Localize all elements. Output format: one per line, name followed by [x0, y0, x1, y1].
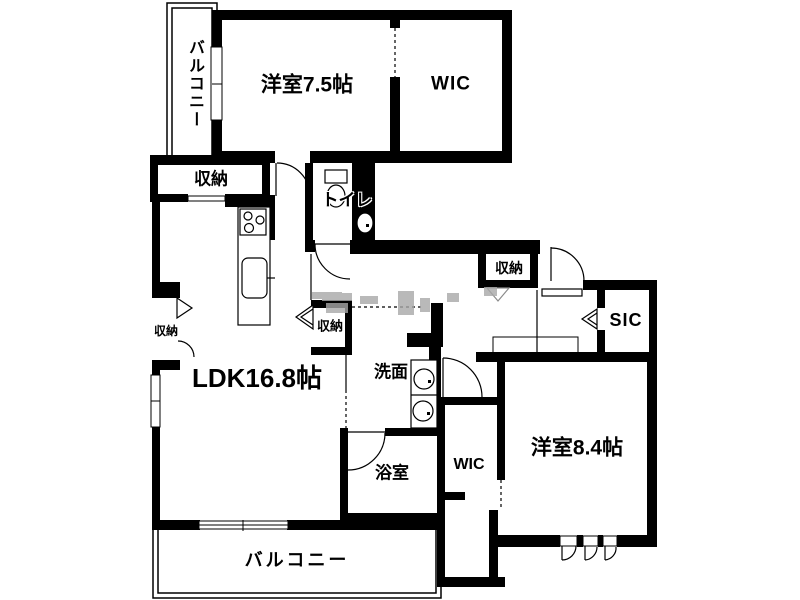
window-bedroom84-2 — [583, 536, 598, 546]
window-bedroom84-3 — [603, 536, 617, 546]
closet-door-left — [177, 298, 194, 357]
kitchen-counter-icon — [238, 207, 275, 325]
label-storage-left: 収納 — [154, 325, 178, 337]
windows-bedroom84-swings — [562, 546, 616, 560]
label-storage-hall: 収納 — [495, 261, 523, 275]
label-wic-bottom: WIC — [453, 457, 484, 473]
watermark — [312, 287, 497, 315]
label-sic: SIC — [609, 311, 642, 329]
label-bedroom-7-5: 洋室7.5帖 — [261, 75, 353, 96]
label-storage-top: 収納 — [194, 171, 228, 188]
closet-door-sic — [582, 308, 605, 330]
label-bedroom-8-4: 洋室8.4帖 — [531, 438, 623, 459]
label-balcony-top: バルコニー — [186, 39, 202, 129]
label-toilet: トイレ — [322, 192, 373, 209]
label-ldk: LDK16.8帖 — [192, 365, 322, 391]
label-storage-mid: 収納 — [317, 320, 343, 333]
door-toilet — [315, 244, 350, 279]
label-bathroom: 浴室 — [375, 465, 409, 482]
label-washroom: 洗面 — [374, 364, 408, 381]
closet-door-mid — [296, 305, 313, 329]
sliding-door-storage-top — [188, 196, 225, 201]
window-bedroom84-1 — [560, 536, 577, 546]
toilet-sink-icon — [357, 213, 373, 233]
floorplan: バルコニー 洋室7.5帖 WIC 収納 トイレ 収納 収納 収納 LDK16.8… — [0, 0, 800, 600]
door-bedroom75 — [276, 163, 310, 196]
entrance-step — [542, 289, 582, 296]
label-balcony-bottom: バルコニー — [245, 551, 350, 569]
label-wic-top: WIC — [431, 75, 471, 94]
door-entrance — [542, 247, 584, 296]
door-wic-bottom — [443, 358, 482, 397]
kitchen-sink-icon — [242, 258, 267, 298]
washbasin-icon — [411, 360, 437, 428]
floorplan-drawing — [0, 0, 800, 600]
open-boundaries — [346, 28, 501, 510]
